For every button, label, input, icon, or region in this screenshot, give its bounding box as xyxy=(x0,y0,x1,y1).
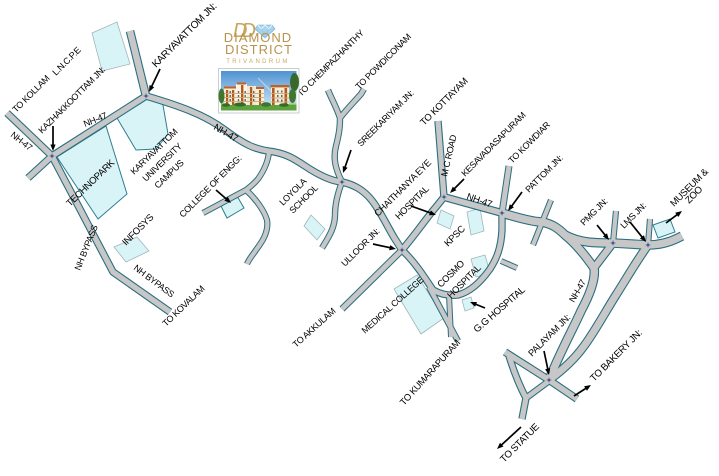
svg-text:DISTRICT: DISTRICT xyxy=(225,42,293,57)
svg-text:TRIVANDRUM: TRIVANDRUM xyxy=(226,59,290,65)
